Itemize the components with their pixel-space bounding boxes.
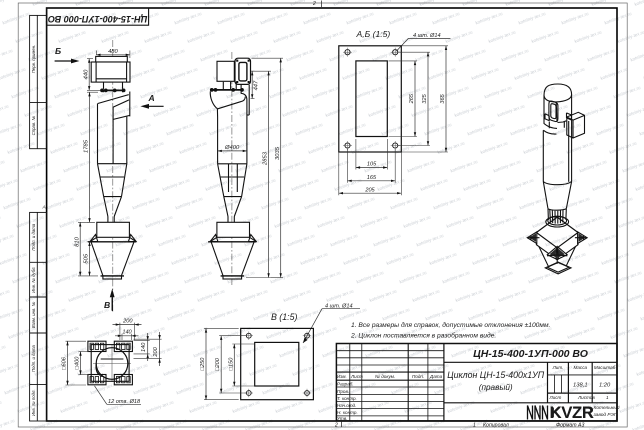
svg-text:1: 1: [606, 395, 609, 400]
svg-text:4 шт. Ø14: 4 шт. Ø14: [413, 33, 441, 39]
svg-text:200: 200: [153, 346, 159, 357]
svg-text:Взам. инв. №: Взам. инв. №: [31, 301, 36, 328]
svg-text:2: 2: [334, 423, 338, 429]
svg-text:ЦН-15-400-1УП-000 ВО: ЦН-15-400-1УП-000 ВО: [473, 348, 588, 360]
svg-text:Перв. примен.: Перв. примен.: [31, 45, 36, 74]
svg-text:Подп. и дата: Подп. и дата: [31, 345, 36, 373]
svg-text:Ø400: Ø400: [224, 145, 240, 151]
svg-text:□250: □250: [200, 357, 206, 371]
svg-text:завод РЭП: завод РЭП: [593, 412, 618, 418]
svg-text:А: А: [148, 93, 155, 103]
svg-text:А,Б (1:5): А,Б (1:5): [356, 29, 391, 39]
svg-text:140: 140: [122, 330, 132, 336]
svg-text:12 отв. Ø18: 12 отв. Ø18: [108, 399, 141, 405]
svg-text:140: 140: [141, 342, 147, 352]
svg-text:Инв. № подл.: Инв. № подл.: [31, 389, 36, 416]
svg-text:365: 365: [440, 93, 446, 103]
svg-text:325: 325: [422, 93, 428, 103]
svg-text:KVZR: KVZR: [551, 405, 593, 422]
svg-text:(правый): (правый): [479, 383, 513, 392]
svg-text:□150: □150: [228, 357, 234, 371]
svg-text:3035: 3035: [275, 146, 281, 160]
svg-text:Б: Б: [55, 46, 61, 56]
svg-text:Т. контр.: Т. контр.: [337, 396, 357, 401]
svg-text:2853: 2853: [263, 151, 269, 166]
svg-text:□200: □200: [215, 357, 221, 371]
svg-text:Масса: Масса: [574, 365, 588, 370]
svg-text:Утв.: Утв.: [337, 416, 347, 421]
svg-text:1:20: 1:20: [599, 383, 611, 389]
svg-text:447: 447: [254, 80, 260, 90]
svg-text:Формат А3: Формат А3: [556, 423, 584, 429]
svg-text:Нач.отд.: Нач.отд.: [337, 403, 356, 408]
svg-text:Лист: Лист: [549, 395, 562, 400]
svg-text:200: 200: [122, 318, 133, 324]
svg-text:ЦН-15-400-1УП-000 ВО: ЦН-15-400-1УП-000 ВО: [48, 14, 147, 24]
svg-text:Лит.: Лит.: [552, 365, 564, 370]
svg-text:В (1:5): В (1:5): [271, 312, 297, 322]
svg-text:Подп. и дата: Подп. и дата: [31, 223, 36, 251]
svg-text:Подп.: Подп.: [412, 374, 424, 379]
svg-text:Справ. №: Справ. №: [31, 115, 36, 135]
svg-text:Н. контр.: Н. контр.: [337, 410, 358, 415]
svg-text:□606: □606: [61, 356, 67, 370]
svg-text:2: 2: [312, 1, 316, 7]
svg-text:Лист: Лист: [350, 374, 363, 379]
svg-text:1. Все размеры для справок, до: 1. Все размеры для справок, допустимые о…: [351, 321, 551, 329]
svg-text:Изм.: Изм.: [337, 374, 347, 379]
svg-text:505: 505: [84, 253, 90, 263]
svg-text:В: В: [104, 300, 110, 310]
svg-text:138,1: 138,1: [573, 383, 588, 389]
svg-text:А: А: [42, 205, 46, 211]
svg-text:810: 810: [74, 236, 80, 246]
svg-text:105: 105: [367, 162, 377, 168]
svg-text:440: 440: [83, 69, 89, 79]
svg-text:Копировал: Копировал: [483, 423, 509, 429]
svg-text:205: 205: [364, 187, 375, 193]
svg-text:1785: 1785: [84, 139, 90, 153]
svg-text:Циклон ЦН-15-400х1УП: Циклон ЦН-15-400х1УП: [447, 370, 545, 380]
svg-text:□400: □400: [74, 356, 80, 370]
svg-text:480: 480: [108, 49, 118, 55]
svg-text:Инв. № дубл.: Инв. № дубл.: [31, 266, 36, 292]
svg-text:1: 1: [473, 423, 476, 429]
svg-text:165: 165: [367, 175, 377, 181]
svg-text:265: 265: [409, 93, 415, 104]
svg-text:№ докум.: № докум.: [375, 374, 395, 379]
svg-text:Разраб.: Разраб.: [337, 382, 354, 387]
svg-text:Листов: Листов: [577, 395, 595, 400]
svg-text:Дата: Дата: [429, 374, 443, 379]
svg-text:Масштаб: Масштаб: [594, 365, 616, 370]
svg-text:2. Циклон поставляется в разоб: 2. Циклон поставляется в разобранном вид…: [350, 332, 496, 340]
svg-text:Котельный: Котельный: [594, 404, 620, 411]
svg-text:Пров.: Пров.: [337, 389, 349, 394]
